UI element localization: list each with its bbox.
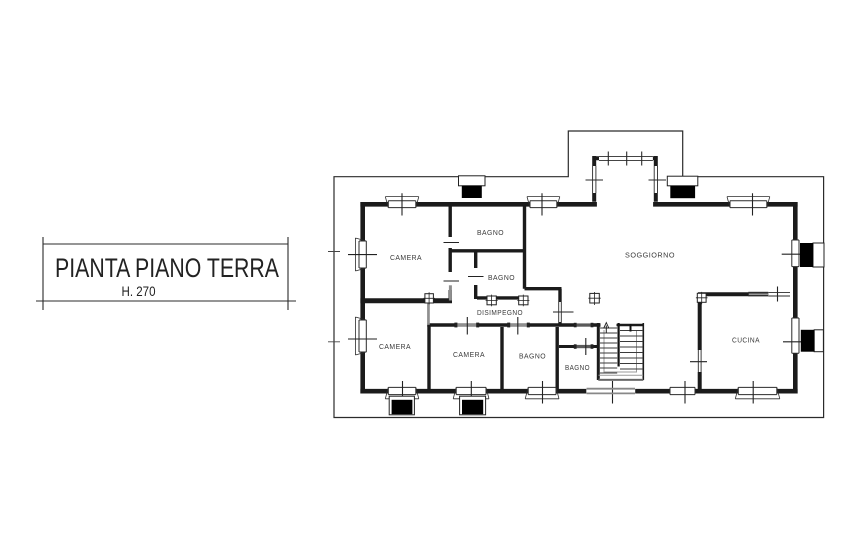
room-label-disimpegno: DISIMPEGNO bbox=[477, 308, 523, 317]
interior-walls bbox=[360, 206, 748, 392]
title-block: PIANTA PIANO TERRA H. 270 bbox=[36, 237, 296, 310]
room-label-camera-sud: CAMERA bbox=[453, 350, 485, 359]
porch-walls bbox=[592, 156, 658, 202]
room-label-bagno-sud: BAGNO bbox=[519, 352, 546, 361]
door-leaf-bagno-sud-est bbox=[575, 345, 592, 348]
door-leaf-camera-sud bbox=[456, 323, 478, 327]
floor-plan-drawing: PIANTA PIANO TERRA H. 270 bbox=[0, 0, 853, 560]
outer-contour bbox=[328, 131, 824, 418]
entrance-threshold bbox=[587, 389, 636, 394]
room-label-bagno-sud-est: BAGNO bbox=[565, 363, 590, 372]
door-leaf-antibagno bbox=[575, 323, 592, 326]
room-label-bagno-centro: BAGNO bbox=[488, 273, 515, 282]
room-label-soggiorno: SOGGIORNO bbox=[625, 251, 675, 260]
drawing-title: PIANTA PIANO TERRA bbox=[55, 253, 279, 283]
room-label-camera-nord-ovest: CAMERA bbox=[390, 253, 422, 262]
room-label-cucina: CUCINA bbox=[732, 336, 760, 345]
door-leaf-camera-sud-ovest bbox=[427, 303, 430, 325]
drawing-height-note: H. 270 bbox=[122, 283, 156, 299]
floor-plan-sheet: PIANTA PIANO TERRA H. 270 bbox=[0, 0, 853, 560]
pillars bbox=[424, 292, 708, 306]
stairs bbox=[598, 323, 643, 380]
room-label-camera-sud-ovest: CAMERA bbox=[379, 342, 411, 351]
door-leaf-camera-nord-ovest bbox=[449, 285, 452, 300]
room-label-bagno-nord: BAGNO bbox=[477, 228, 504, 237]
stair-up-arrow-icon bbox=[604, 323, 609, 333]
